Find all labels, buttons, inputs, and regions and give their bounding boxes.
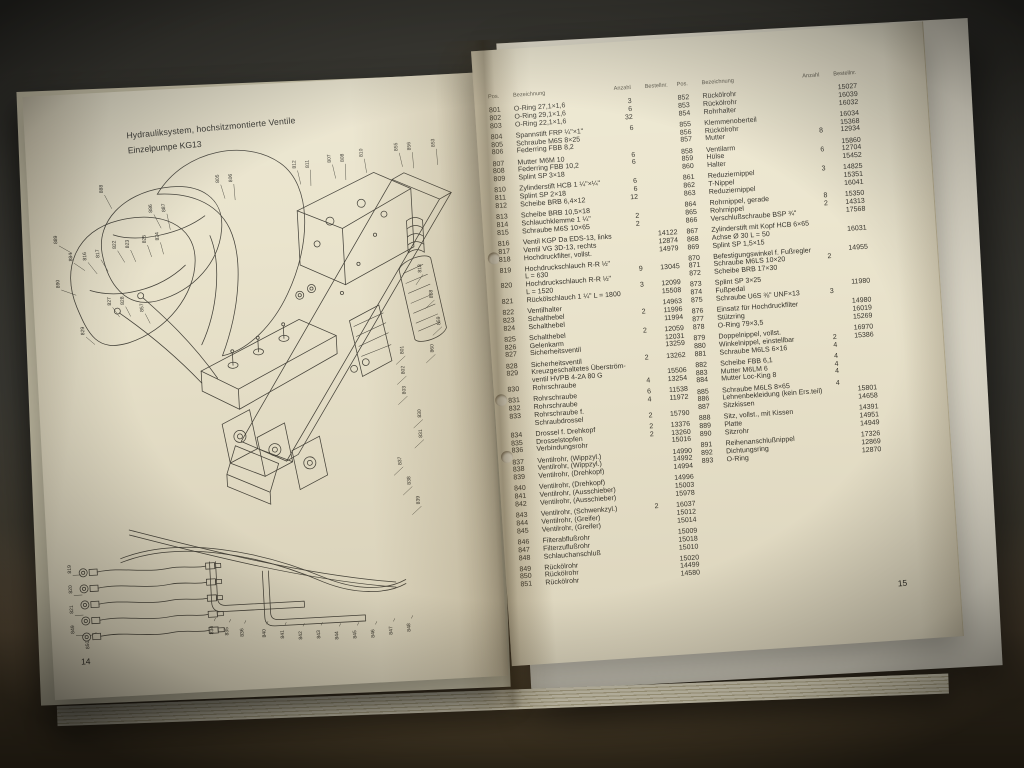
diagram-callout: 821	[69, 605, 75, 614]
diagram-callout: 808	[339, 153, 345, 162]
diagram-callout: 811	[305, 160, 311, 169]
part-pos: 857	[680, 135, 705, 144]
diagram-callout: 845	[352, 630, 358, 639]
diagram-callout: 857	[139, 303, 145, 312]
diagram-callout: 820	[68, 585, 74, 594]
photo-background: Hydrauliksystem, hochsitzmontierte Venti…	[0, 0, 1024, 768]
part-orderno: 17568	[828, 205, 865, 215]
diagram-callout: 835	[224, 627, 230, 636]
diagram-callout: 890	[55, 279, 61, 288]
part-qty: 4	[632, 377, 650, 386]
part-pos: 860	[682, 162, 707, 171]
part-qty	[823, 403, 841, 404]
part-orderno: 15508	[644, 287, 681, 297]
part-qty	[814, 269, 832, 270]
diagram-callout: 849	[70, 625, 76, 634]
part-pos: 881	[694, 349, 719, 358]
part-orderno: 15016	[654, 436, 691, 446]
header-qty: Anzahl	[801, 72, 819, 79]
part-orderno: 15010	[661, 543, 698, 553]
part-pos: 836	[511, 446, 536, 455]
diagram-callout: 817	[95, 249, 101, 258]
part-qty: 2	[627, 308, 645, 317]
part-pos: 803	[490, 121, 515, 130]
part-pos: 887	[698, 403, 723, 412]
diagram-callout: 803	[401, 386, 407, 395]
part-qty	[637, 446, 655, 447]
part-pos: 824	[503, 324, 528, 333]
part-orderno	[638, 199, 675, 201]
part-qty: 2	[636, 431, 654, 440]
diagram-callout: 801	[399, 345, 405, 354]
diagram-callout: 843	[316, 630, 322, 639]
part-qty: 6	[615, 125, 633, 134]
diagram-callout: 847	[388, 626, 394, 635]
diagram-callout: 889	[53, 235, 59, 244]
diagram-callout: 823	[125, 239, 131, 248]
header-no: Bestellnr.	[631, 82, 668, 90]
page-number-right: 15	[897, 578, 907, 589]
part-qty: 3	[807, 166, 825, 175]
parts-table: Pos. Bezeichnung Anzahl Bestellnr. 801O-…	[488, 66, 952, 645]
part-orderno: 14994	[656, 463, 693, 473]
part-qty: 2	[631, 354, 649, 363]
header-pos: Pos.	[488, 93, 513, 101]
part-orderno: 16041	[826, 179, 863, 189]
diagram-callout: 860	[429, 344, 435, 353]
diagram-callout: 886	[148, 204, 154, 213]
part-orderno: 15269	[835, 312, 872, 322]
diagram-callout: 888	[98, 184, 104, 193]
open-booklet: Hydrauliksystem, hochsitzmontierte Venti…	[14, 25, 971, 718]
part-qty	[807, 162, 825, 163]
part-pos: 866	[686, 216, 711, 225]
diagram-callout: 859	[436, 316, 442, 325]
part-qty: 4	[633, 396, 651, 405]
part-qty	[818, 322, 836, 323]
right-page: Pos. Bezeichnung Anzahl Bestellnr. 801O-…	[471, 21, 964, 666]
part-qty	[642, 526, 660, 527]
diagram-callout: 839	[415, 496, 421, 505]
diagram-callout: 846	[370, 629, 376, 638]
part-pos: 821	[501, 297, 526, 306]
diagram-callout: 837	[397, 456, 403, 465]
part-qty: 6	[618, 159, 636, 168]
diagram-callout: 887	[161, 203, 167, 212]
part-orderno	[633, 119, 670, 121]
part-pos: 829	[506, 370, 531, 379]
part-qty	[644, 553, 662, 554]
part-qty	[627, 297, 645, 298]
part-pos: 812	[495, 201, 520, 210]
header-name: Bezeichnung	[513, 86, 613, 99]
diagram-callouts: 8888868878058068128118078088108558568538…	[45, 138, 463, 654]
diagram-callout: 806	[228, 173, 234, 182]
header-name: Bezeichnung	[701, 74, 801, 87]
part-qty: 12	[620, 194, 638, 203]
diagram-callout: 834	[209, 626, 215, 635]
part-orderno: 15452	[825, 152, 862, 162]
part-qty: 3	[816, 288, 834, 297]
diagram-callout: 816	[82, 252, 88, 261]
part-qty: 2	[629, 327, 647, 336]
diagram-callout: 838	[406, 476, 412, 485]
part-qty	[813, 242, 831, 243]
part-qty: 2	[813, 253, 831, 262]
diagram-callout: 805	[215, 174, 221, 183]
part-qty: 2	[634, 412, 652, 421]
part-pos: 848	[519, 553, 544, 562]
diagram-callout: 830	[417, 409, 423, 418]
diagram-callout: 802	[400, 365, 406, 374]
part-qty: 4	[821, 368, 839, 377]
part-pos: 851	[520, 580, 545, 589]
diagram-callout: 831	[418, 429, 424, 438]
part-qty	[629, 324, 647, 325]
part-qty	[640, 500, 658, 501]
diagram-callout: 822	[112, 240, 118, 249]
part-orderno	[830, 240, 867, 242]
part-orderno: 15014	[659, 516, 696, 526]
part-pos: 845	[517, 527, 542, 536]
part-pos: 854	[678, 109, 703, 118]
part-orderno: 16032	[821, 98, 858, 108]
diagram-callout: 836	[239, 628, 245, 637]
diagram-callout: 850	[85, 640, 91, 649]
part-orderno: 11994	[646, 314, 683, 324]
parts-table-column-2: Pos. Bezeichnung Anzahl Bestellnr. 852Rü…	[677, 70, 884, 469]
part-qty: 8	[805, 128, 823, 137]
part-qty	[638, 473, 656, 474]
part-orderno: 12934	[823, 125, 860, 135]
diagram-callout: 825	[141, 234, 147, 243]
part-orderno	[838, 347, 875, 349]
part-orderno: 15790	[652, 409, 689, 419]
diagram-callout: 856	[406, 142, 412, 151]
page-number-left: 14	[81, 656, 91, 666]
part-pos: 842	[515, 500, 540, 509]
diagram-callout: 824	[154, 232, 160, 241]
part-orderno: 15978	[658, 490, 695, 500]
part-pos: 815	[497, 228, 522, 237]
diagram-callout: 828	[120, 296, 126, 305]
part-pos: 820	[500, 282, 525, 291]
diagram-callout: 818	[417, 264, 423, 273]
part-qty	[630, 351, 648, 352]
part-orderno: 13254	[650, 375, 687, 385]
diagram-callout: 853	[430, 138, 436, 147]
part-qty: 6	[806, 147, 824, 156]
part-orderno	[640, 226, 677, 228]
part-orderno: 13259	[648, 340, 685, 350]
part-orderno: 12870	[844, 446, 881, 456]
part-qty	[827, 456, 845, 457]
part-qty: 9	[625, 266, 643, 275]
part-qty	[811, 216, 829, 217]
part-orderno	[832, 267, 869, 269]
header-qty: Anzahl	[613, 85, 631, 92]
part-orderno: 14658	[841, 392, 878, 402]
part-qty	[619, 175, 637, 176]
part-orderno	[839, 373, 876, 375]
diagram-callout: 827	[107, 297, 113, 306]
part-qty	[809, 189, 827, 190]
part-qty: 4	[822, 379, 840, 388]
diagram-callout: 829	[80, 326, 86, 335]
punch-hole	[495, 394, 508, 407]
part-orderno	[635, 146, 672, 148]
part-pos: 819	[499, 266, 524, 275]
header-no: Bestellnr.	[819, 70, 856, 78]
exploded-diagram: 8888868878058068128118078088108558568538…	[37, 117, 500, 688]
part-qty	[646, 580, 664, 581]
part-pos: 890	[700, 429, 725, 438]
part-pos: 875	[691, 296, 716, 305]
part-pos: 878	[693, 323, 718, 332]
part-qty	[617, 148, 635, 149]
diagram-callout: 819	[67, 565, 73, 574]
part-qty: 4	[819, 341, 837, 350]
diagram-callout: 858	[428, 289, 434, 298]
part-pos: 893	[701, 456, 726, 465]
part-pos: 869	[687, 242, 712, 251]
part-qty	[804, 109, 822, 110]
header-pos: Pos.	[677, 80, 702, 88]
part-qty	[624, 255, 642, 256]
diagram-callout: 841	[280, 630, 286, 639]
part-pos: 818	[499, 255, 524, 264]
diagram-callout: 812	[291, 160, 297, 169]
part-orderno	[637, 172, 674, 174]
part-qty	[825, 429, 843, 430]
part-qty: 2	[640, 503, 658, 512]
diagram-callout: 842	[298, 631, 304, 640]
part-orderno	[834, 293, 871, 295]
diagram-callout: 844	[334, 631, 340, 640]
part-qty: 2	[622, 220, 640, 229]
part-pos: 830	[507, 385, 532, 394]
diagram-callout: 884	[68, 253, 74, 262]
part-pos: 806	[492, 148, 517, 157]
diagram-callout: 848	[406, 623, 412, 632]
part-pos: 839	[513, 473, 538, 482]
part-pos: 863	[684, 189, 709, 198]
left-page: Hydrauliksystem, hochsitzmontierte Venti…	[22, 72, 508, 700]
part-pos: 827	[505, 351, 530, 360]
part-qty: 32	[615, 113, 633, 122]
diagram-callout: 807	[326, 154, 332, 163]
part-pos: 833	[509, 412, 534, 421]
parts-table-column-1: Pos. Bezeichnung Anzahl Bestellnr. 801O-…	[488, 82, 703, 592]
part-pos: 884	[696, 376, 721, 385]
diagram-callout: 840	[261, 629, 267, 638]
part-orderno: 14580	[663, 570, 700, 580]
part-pos: 872	[689, 269, 714, 278]
diagram-callout: 810	[358, 148, 364, 157]
part-pos: 809	[493, 175, 518, 184]
part-qty: 3	[626, 282, 644, 291]
part-orderno: 14979	[641, 245, 678, 255]
diagram-callout: 855	[393, 142, 399, 151]
part-orderno: 14949	[842, 419, 879, 429]
part-qty: 2	[810, 200, 828, 209]
